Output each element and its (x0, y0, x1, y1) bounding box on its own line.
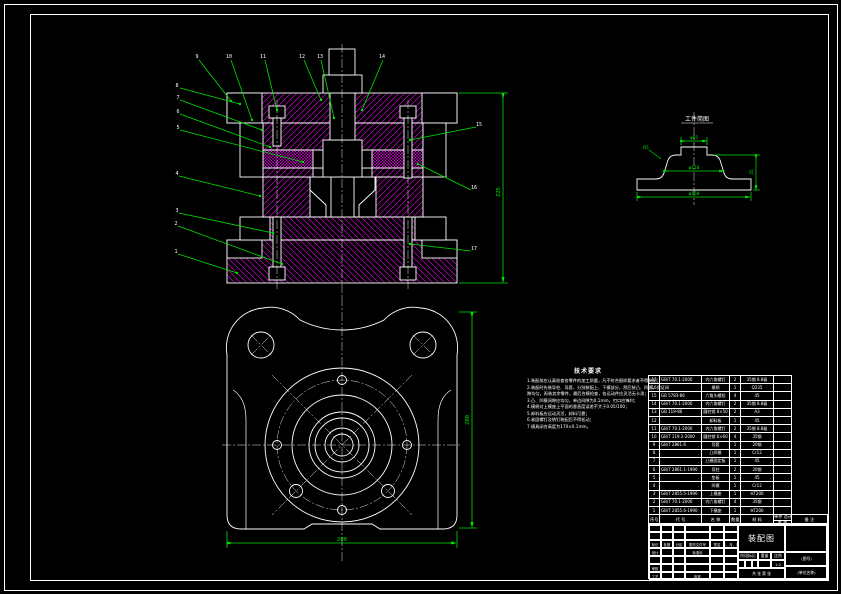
bom-cell (774, 474, 792, 482)
bom-row: 8凸凹模1Cr12 (649, 449, 828, 457)
title-block-cell (685, 524, 710, 532)
plan-dimensions (227, 312, 477, 548)
svg-text:6: 6 (176, 109, 179, 115)
title-block-cell (673, 548, 685, 556)
company-name: (单位名称) (785, 566, 828, 580)
bom-cell: 8 (649, 449, 660, 457)
bom-cell: GB/T 70.1-2000 (660, 400, 702, 408)
drawing-number: (图号) (785, 552, 828, 566)
bom-cell: 35钢 (741, 433, 774, 441)
bom-cell: 2 (730, 425, 741, 433)
bom-cell: 4 (649, 482, 660, 490)
bom-cell: 2 (730, 466, 741, 474)
title-block-cell: 更改文件号 (685, 540, 710, 548)
bom-cell: 2 (649, 498, 660, 506)
bom-cell: 4 (730, 392, 741, 400)
drawing-title: 装配图 (738, 524, 785, 552)
bom-cell (774, 466, 792, 474)
section-view: 225 910 1112 1314 87 (155, 40, 520, 302)
bom-cell: 20钢 (741, 441, 774, 449)
bom-cell: 1 (730, 457, 741, 465)
tech-line: 1.装配前应认真检查各零件的加工质量，凡不符合图样要求者不得装配； (527, 378, 649, 385)
bom-cell (774, 392, 792, 400)
material-mark-cell (785, 524, 828, 552)
bom-cell: 模柄 (702, 384, 730, 392)
bom-cell: Cr12 (741, 449, 774, 457)
bom-body: 17GB/T 70.1-2000内六角螺钉235钢 8.8级16模柄1Q2351… (649, 376, 828, 515)
die-shank-collar (323, 75, 362, 93)
bom-cell: Cr12 (741, 482, 774, 490)
bom-cell (774, 482, 792, 490)
title-block-cell (661, 524, 673, 532)
svg-text:12: 12 (299, 54, 305, 60)
part-dim-bottom: φ150 (689, 191, 700, 197)
bom-cell (774, 441, 792, 449)
bom-cell: 卸料板 (702, 416, 730, 424)
tech-requirements-lines: 1.装配前应认真检查各零件的加工质量，凡不符合图样要求者不得装配；2.装配时先装… (527, 378, 649, 430)
title-block-cell (649, 532, 661, 540)
bom-cell: 9 (649, 441, 660, 449)
title-block: 标记处数分区更改文件号签名年、月、日设计标准化审核工艺批准 装配图 阶段标记 重… (648, 523, 827, 579)
bom-cell: GB 5783-86 (660, 392, 702, 400)
bom-cell: GB/T 70.1-2000 (660, 376, 702, 384)
section-height-dim-text: 225 (496, 187, 502, 197)
bom-row: 4凹模1Cr12 (649, 482, 828, 490)
bom-cell: 6 (649, 466, 660, 474)
bom-row: 9GB/T 2861.6导套120钢 (649, 441, 828, 449)
bom-row: 1GB/T 2855.6-1990下模座1HT200 (649, 507, 828, 515)
bom-cell (774, 376, 792, 384)
bom-cell: 20钢 (741, 466, 774, 474)
bom-cell: GB/T 119.2-2000 (660, 433, 702, 441)
bom-cell: 上模座 (702, 490, 730, 498)
bom-cell: 1 (730, 441, 741, 449)
bom-row: 12卸料板145 (649, 416, 828, 424)
bom-cell: 1 (649, 507, 660, 515)
title-block-cell (724, 532, 738, 540)
bom-cell: GB/T 2855.5-1990 (660, 490, 702, 498)
bom-cell: 凸模固定板 (702, 457, 730, 465)
svg-text:15: 15 (476, 122, 482, 128)
bom-cell: 17 (649, 376, 660, 384)
bom-cell: HT200 (741, 490, 774, 498)
bom-cell: GB 119-86 (660, 408, 702, 416)
scale-value: 1:2 (771, 560, 785, 568)
bom-cell (774, 384, 792, 392)
part-detail-view: 工件简图 φ65 φ110 φ150 35 R5 (625, 108, 785, 210)
bom-row: 13GB 119-86圆柱销 8×502A3 (649, 408, 828, 416)
bom-row: 3GB/T 2855.5-1990上模座1HT200 (649, 490, 828, 498)
plan-height-dim-text: 200 (465, 415, 471, 425)
title-block-cell (685, 564, 710, 572)
title-block-cell (673, 572, 685, 580)
svg-text:17: 17 (471, 246, 477, 252)
bom-cell: GB/T 2861.1-1990 (660, 466, 702, 474)
title-block-cell (724, 564, 738, 572)
bom-row: 16模柄1Q235 (649, 384, 828, 392)
bom-cell: 16 (649, 384, 660, 392)
bom-cell: Q235 (741, 384, 774, 392)
bom-row: 6GB/T 2861.1-1990导柱220钢 (649, 466, 828, 474)
title-block-cell (710, 524, 724, 532)
title-block-cell (661, 532, 673, 540)
bom-cell: 凸凹模 (702, 449, 730, 457)
bom-cell: 45 (741, 392, 774, 400)
svg-text:9: 9 (195, 54, 198, 60)
bom-cell: 1 (730, 449, 741, 457)
bom-cell: 5 (649, 474, 660, 482)
bom-cell: 内六角螺钉 (702, 376, 730, 384)
sheet-count: 共 张 第 张 (738, 568, 785, 580)
bom-cell: 导柱 (702, 466, 730, 474)
bom-cell: 六角头螺栓 (702, 392, 730, 400)
bom-cell: 45 (741, 416, 774, 424)
title-block-cell (661, 548, 673, 556)
svg-text:7: 7 (176, 95, 179, 101)
tech-line: 7.模具闭合高度为170±0.1mm。 (527, 424, 649, 431)
title-block-cell (710, 564, 724, 572)
bom-cell: 10 (649, 433, 660, 441)
title-block-cell: 审核 (649, 564, 661, 572)
bom-row: 17GB/T 70.1-2000内六角螺钉235钢 8.8级 (649, 376, 828, 384)
bom-cell: HT200 (741, 507, 774, 515)
bom-cell: 2 (730, 376, 741, 384)
bom-cell: 1 (730, 416, 741, 424)
bom-cell (774, 425, 792, 433)
bom-cell: 内六角螺钉 (702, 400, 730, 408)
bom-cell (660, 449, 702, 457)
title-block-cell (673, 564, 685, 572)
scale-label: 比例 (771, 552, 785, 560)
svg-text:8: 8 (175, 83, 178, 89)
bom-cell: 4 (730, 498, 741, 506)
bom-cell: 14 (649, 400, 660, 408)
bom-cell (774, 433, 792, 441)
title-block-cell: 设计 (649, 548, 661, 556)
title-block-cell (710, 556, 724, 564)
bom-row: 10GB/T 119.2-2000圆柱销 6×60435钢 (649, 433, 828, 441)
bom-cell (660, 457, 702, 465)
technical-requirements: 技术要求 1.装配前应认真检查各零件的加工质量，凡不符合图样要求者不得装配；2.… (527, 366, 649, 430)
svg-text:16: 16 (471, 185, 477, 191)
lower-bolster (270, 217, 415, 240)
title-block-cell (710, 572, 724, 580)
bom-cell: 45 (741, 474, 774, 482)
part-dim-top: φ65 (690, 135, 698, 141)
plan-centerlines (222, 297, 462, 562)
stage-label: 阶段标记 (738, 552, 758, 560)
bom-cell: 凹模 (702, 482, 730, 490)
bom-cell: 35钢 8.8级 (741, 400, 774, 408)
bom-cell: GB/T 2861.6 (660, 441, 702, 449)
svg-text:11: 11 (260, 54, 266, 60)
title-block-cell (685, 532, 710, 540)
bom-cell: 7 (649, 457, 660, 465)
part-dim-height: 35 (749, 169, 755, 175)
title-block-cell: 批准 (685, 572, 710, 580)
bom-cell: 35钢 8.8级 (741, 425, 774, 433)
bom-cell (774, 449, 792, 457)
cad-sheet: 225 910 1112 1314 87 (0, 0, 841, 594)
bom-cell: 3 (649, 490, 660, 498)
svg-text:10: 10 (226, 54, 232, 60)
svg-text:3: 3 (175, 208, 178, 214)
bom-cell (660, 474, 702, 482)
title-block-cell (673, 524, 685, 532)
svg-text:1: 1 (174, 249, 177, 255)
title-block-cell (724, 556, 738, 564)
bom-cell: 12 (649, 416, 660, 424)
bom-row: 7凸模固定板145 (649, 457, 828, 465)
svg-text:14: 14 (379, 54, 385, 60)
bom-cell: 35钢 8.8级 (741, 376, 774, 384)
die-block-right (376, 177, 423, 217)
bom-cell (660, 482, 702, 490)
bom-cell: 2 (730, 408, 741, 416)
bom-row: 15GB 5783-86六角头螺栓445 (649, 392, 828, 400)
title-block-cell (661, 564, 673, 572)
bom-cell: 导套 (702, 441, 730, 449)
title-block-cell (649, 524, 661, 532)
bom-cell: GB/T 70.1-2000 (660, 425, 702, 433)
part-dim-mid: φ110 (689, 165, 700, 171)
bom-row: 2GB/T 70.1-2000内六角螺钉435钢 (649, 498, 828, 506)
bom-cell: 15 (649, 392, 660, 400)
guide-bushing-left (240, 123, 263, 177)
title-block-cell: 标记 (649, 540, 661, 548)
title-block-cell: 年、月、日 (724, 540, 738, 548)
title-block-cell (649, 556, 661, 564)
die-block-left (263, 177, 310, 217)
bom-cell: 45 (741, 457, 774, 465)
bom-cell: 13 (649, 408, 660, 416)
svg-text:4: 4 (175, 171, 178, 177)
title-block-cell: 分区 (673, 540, 685, 548)
part-detail-title: 工件简图 (685, 115, 709, 123)
tech-line: 隙均匀，再装其余零件，最后合模检查，各运动件应灵活无卡滞； (527, 391, 649, 398)
bom-cell: 内六角螺钉 (702, 425, 730, 433)
weight-label: 重量 (758, 552, 771, 560)
title-block-cell (724, 572, 738, 580)
bom-cell: 下模座 (702, 507, 730, 515)
tech-requirements-title: 技术要求 (527, 366, 649, 375)
bom-cell: 11 (649, 425, 660, 433)
plan-view: 200 200 (215, 295, 490, 570)
title-block-cell: 工艺 (649, 572, 661, 580)
title-block-cell (685, 556, 710, 564)
title-block-cell: 标准化 (685, 548, 710, 556)
bom-cell: 35钢 (741, 498, 774, 506)
bom-cell (774, 457, 792, 465)
bom-cell (774, 400, 792, 408)
bom-row: 5垫板145 (649, 474, 828, 482)
bom-cell (660, 384, 702, 392)
bom-cell: GB/T 70.1-2000 (660, 498, 702, 506)
bom-cell (774, 408, 792, 416)
bom-row: 11GB/T 70.1-2000内六角螺钉235钢 8.8级 (649, 425, 828, 433)
svg-text:2: 2 (174, 221, 177, 227)
bom-cell (774, 490, 792, 498)
bom-cell (774, 416, 792, 424)
title-block-cell: 签名 (710, 540, 724, 548)
title-block-cell (724, 524, 738, 532)
guide-bushing-right (423, 123, 446, 177)
title-block-cell (710, 532, 724, 540)
bom-cell (660, 416, 702, 424)
part-dim-fillet: R5 (643, 145, 649, 151)
svg-text:13: 13 (317, 54, 323, 60)
title-block-cell: 处数 (661, 540, 673, 548)
bom-cell: A3 (741, 408, 774, 416)
bom-cell: 4 (730, 433, 741, 441)
bom-table: 17GB/T 70.1-2000内六角螺钉235钢 8.8级16模柄1Q2351… (648, 375, 828, 526)
bom-cell: 1 (730, 384, 741, 392)
bom-row: 14GB/T 70.1-2000内六角螺钉235钢 8.8级 (649, 400, 828, 408)
plan-width-dim-text: 200 (337, 537, 347, 543)
title-block-cell (673, 532, 685, 540)
title-block-cell (661, 556, 673, 564)
bom-cell: GB/T 2855.6-1990 (660, 507, 702, 515)
bom-cell: 圆柱销 8×50 (702, 408, 730, 416)
bom-cell: 垫板 (702, 474, 730, 482)
bom-cell (774, 507, 792, 515)
title-block-cell (724, 548, 738, 556)
bom-cell: 1 (730, 482, 741, 490)
bom-cell: 圆柱销 6×60 (702, 433, 730, 441)
bom-cell: 2 (730, 400, 741, 408)
bom-cell (774, 498, 792, 506)
title-block-cell (673, 556, 685, 564)
bom-cell: 1 (730, 507, 741, 515)
bom-cell: 1 (730, 490, 741, 498)
title-block-cell (661, 572, 673, 580)
punch-shaft (331, 177, 354, 217)
title-block-cell (710, 548, 724, 556)
bom-cell: 1 (730, 474, 741, 482)
svg-text:5: 5 (176, 125, 179, 131)
bom-cell: 内六角螺钉 (702, 498, 730, 506)
